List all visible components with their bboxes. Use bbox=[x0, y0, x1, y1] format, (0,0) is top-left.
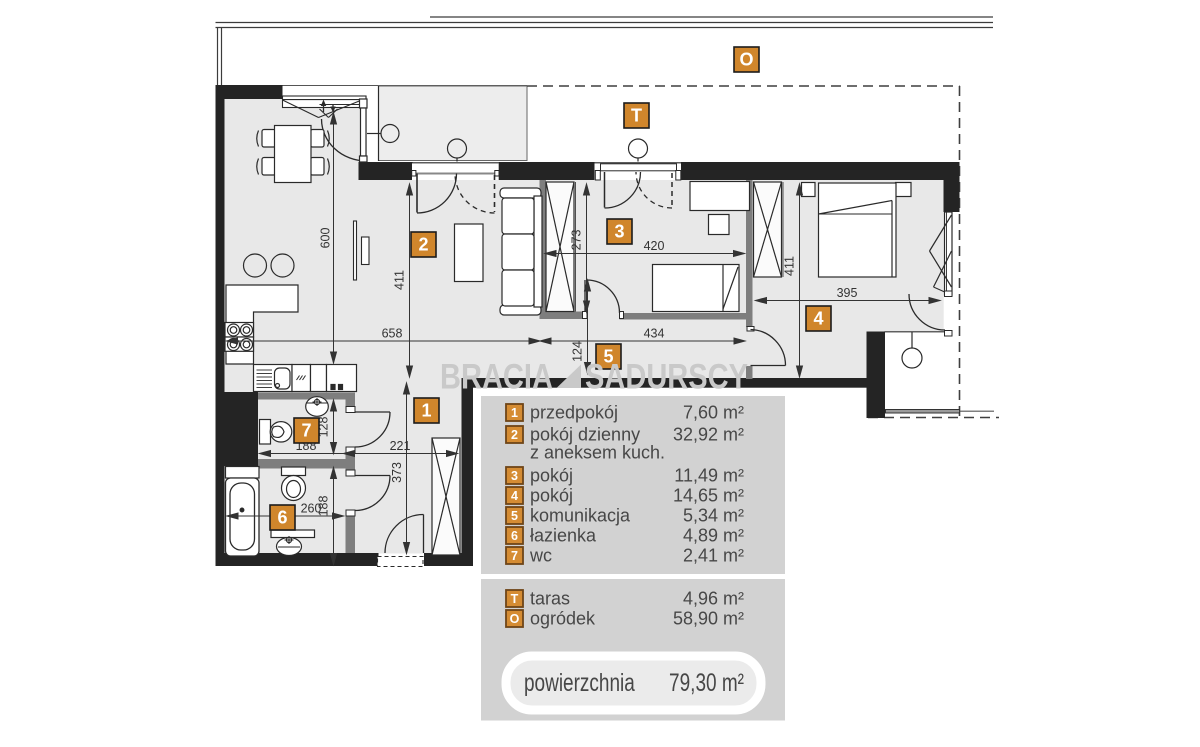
svg-text:4: 4 bbox=[813, 309, 823, 329]
svg-text:ogródek: ogródek bbox=[530, 609, 596, 629]
svg-text:221: 221 bbox=[390, 439, 411, 453]
svg-text:32,92 m²: 32,92 m² bbox=[673, 425, 744, 445]
svg-text:7: 7 bbox=[511, 549, 518, 563]
svg-text:420: 420 bbox=[644, 239, 665, 253]
svg-text:6: 6 bbox=[277, 508, 287, 528]
svg-text:O: O bbox=[510, 612, 520, 626]
svg-text:79,30 m²: 79,30 m² bbox=[669, 668, 744, 696]
svg-text:łazienka: łazienka bbox=[530, 526, 597, 546]
svg-text:4: 4 bbox=[511, 489, 518, 503]
svg-text:z aneksem kuch.: z aneksem kuch. bbox=[530, 443, 665, 463]
svg-text:411: 411 bbox=[783, 256, 797, 276]
svg-text:T: T bbox=[511, 592, 519, 606]
svg-text:434: 434 bbox=[644, 327, 665, 341]
svg-text:3: 3 bbox=[511, 469, 518, 483]
svg-text:373: 373 bbox=[390, 462, 404, 483]
svg-text:600: 600 bbox=[319, 228, 333, 249]
svg-text:O: O bbox=[739, 50, 753, 70]
svg-text:pokój dzienny: pokój dzienny bbox=[530, 425, 640, 445]
svg-text:395: 395 bbox=[837, 286, 858, 300]
svg-text:273: 273 bbox=[570, 230, 584, 251]
svg-text:6: 6 bbox=[511, 529, 518, 543]
svg-text:4,96 m²: 4,96 m² bbox=[683, 589, 744, 609]
svg-text:124: 124 bbox=[571, 341, 585, 362]
svg-text:2: 2 bbox=[418, 235, 428, 255]
svg-text:pokój: pokój bbox=[530, 466, 573, 486]
svg-text:58,90 m²: 58,90 m² bbox=[673, 609, 744, 629]
svg-text:taras: taras bbox=[530, 589, 570, 609]
svg-text:3: 3 bbox=[614, 222, 624, 242]
svg-text:658: 658 bbox=[382, 327, 403, 341]
svg-text:5: 5 bbox=[511, 509, 518, 523]
svg-text:260: 260 bbox=[301, 502, 322, 516]
svg-text:2: 2 bbox=[511, 428, 518, 442]
svg-text:T: T bbox=[631, 106, 642, 126]
svg-text:SADURSCY: SADURSCY bbox=[585, 357, 748, 396]
svg-text:411: 411 bbox=[393, 270, 407, 290]
svg-text:pokój: pokój bbox=[530, 486, 573, 506]
svg-text:1: 1 bbox=[511, 406, 518, 420]
svg-text:7,60 m²: 7,60 m² bbox=[683, 403, 744, 423]
svg-text:11,49 m²: 11,49 m² bbox=[674, 466, 744, 486]
svg-text:4,89 m²: 4,89 m² bbox=[683, 526, 744, 546]
svg-text:powierzchnia: powierzchnia bbox=[524, 668, 635, 696]
svg-text:komunikacja: komunikacja bbox=[530, 506, 631, 526]
svg-text:BRACIA: BRACIA bbox=[440, 357, 553, 396]
svg-text:przedpokój: przedpokój bbox=[530, 403, 618, 423]
svg-text:7: 7 bbox=[301, 421, 311, 441]
svg-text:14,65 m²: 14,65 m² bbox=[673, 486, 744, 506]
svg-text:1: 1 bbox=[421, 401, 431, 421]
svg-text:wc: wc bbox=[529, 546, 552, 566]
svg-text:2,41 m²: 2,41 m² bbox=[683, 546, 744, 566]
svg-text:5,34 m²: 5,34 m² bbox=[683, 506, 744, 526]
